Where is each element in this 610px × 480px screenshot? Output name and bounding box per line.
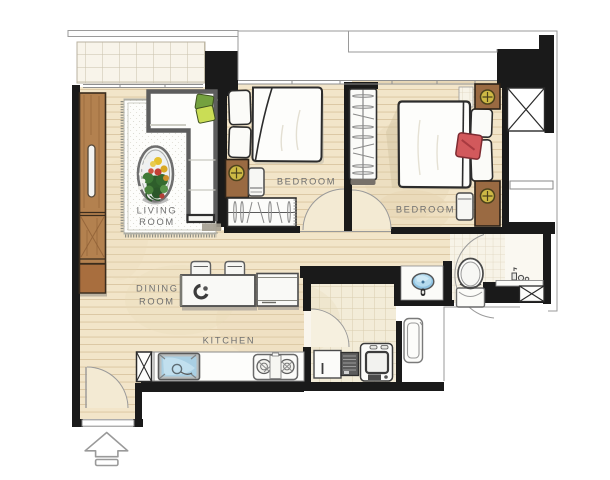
svg-text:BEDROOM: BEDROOM — [396, 205, 455, 215]
svg-text:DINING: DINING — [136, 284, 179, 294]
svg-text:ROOM: ROOM — [139, 217, 175, 227]
svg-text:BEDROOM: BEDROOM — [277, 177, 336, 187]
svg-text:KITCHEN: KITCHEN — [203, 336, 256, 346]
svg-text:ROOM: ROOM — [139, 297, 175, 307]
svg-text:LIVING: LIVING — [137, 206, 178, 216]
